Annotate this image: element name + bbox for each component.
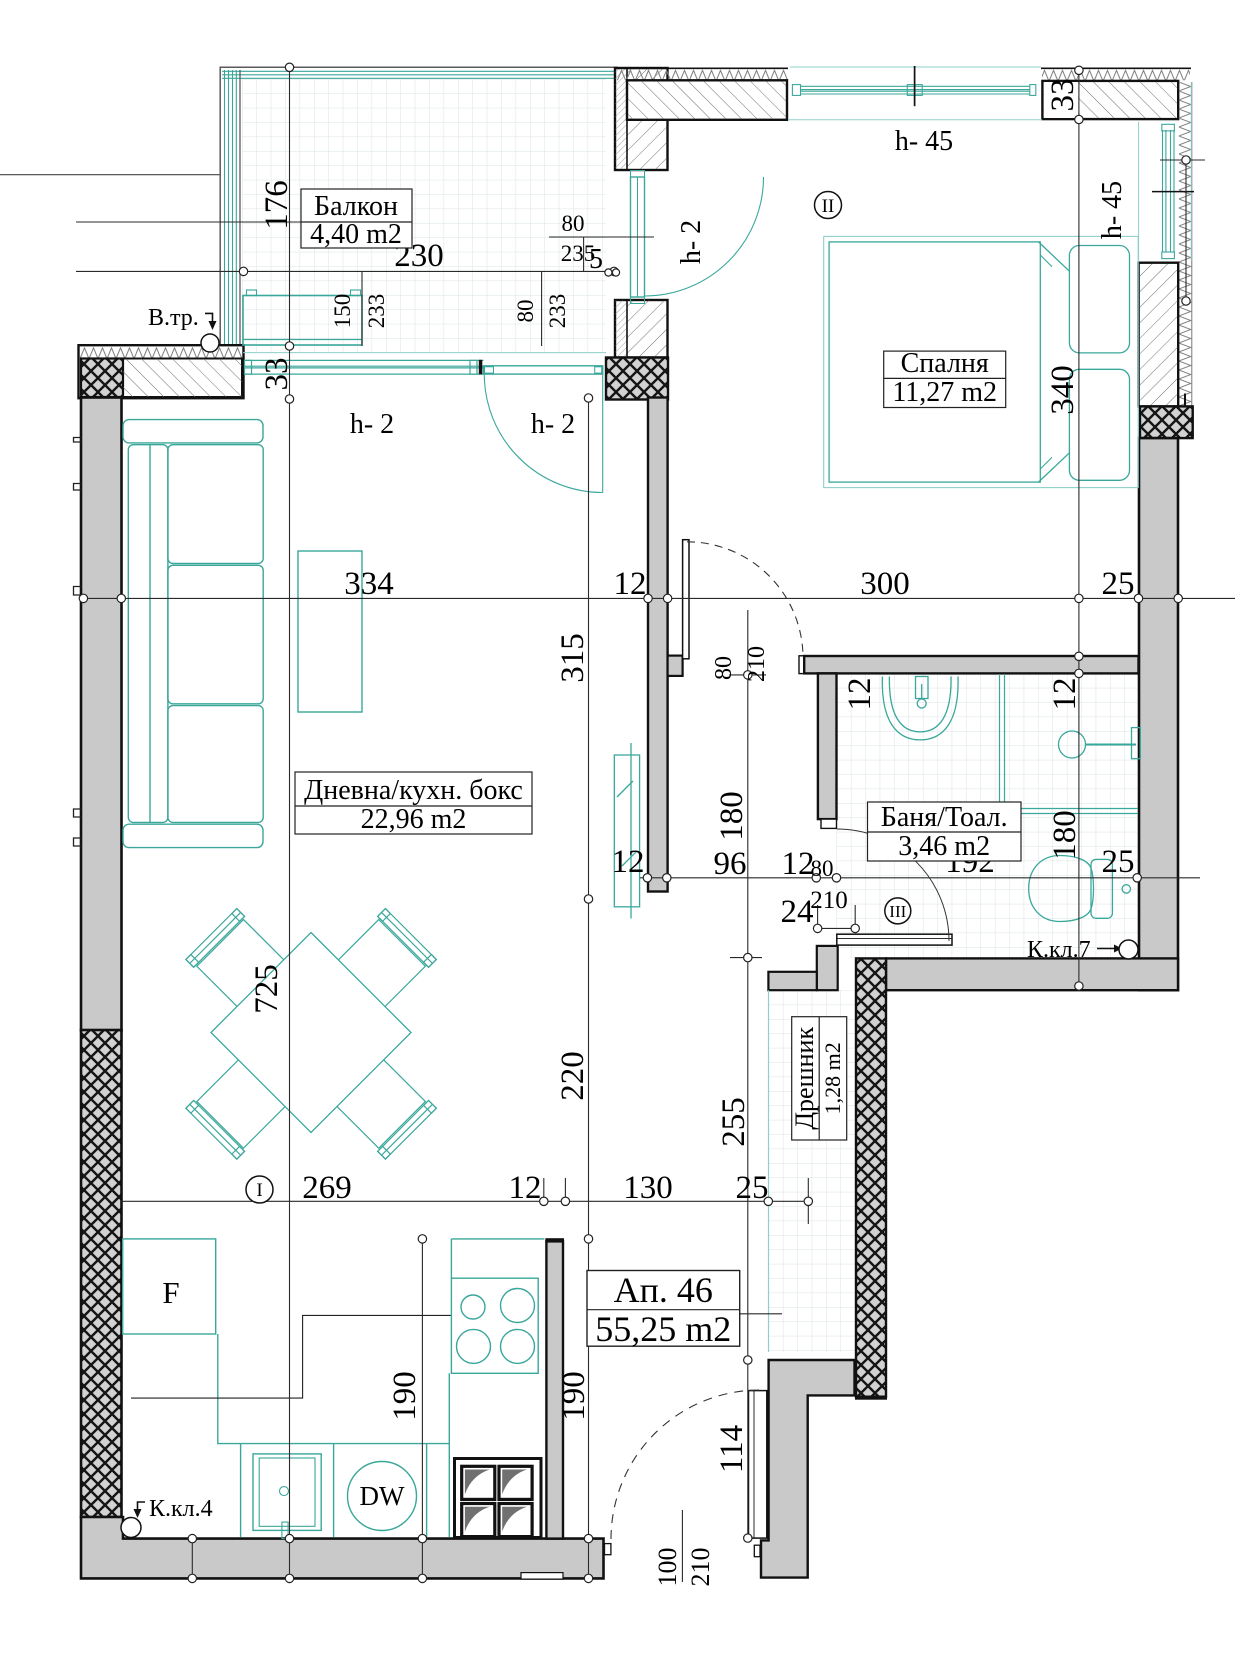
svg-text:33: 33	[259, 358, 295, 391]
svg-text:25: 25	[1102, 844, 1135, 880]
svg-text:22,96 m2: 22,96 m2	[361, 804, 467, 835]
svg-text:h- 45: h- 45	[895, 126, 953, 157]
svg-text:Спалня: Спалня	[901, 348, 989, 379]
svg-text:180: 180	[1047, 810, 1083, 860]
svg-text:II: II	[822, 196, 835, 217]
svg-text:h- 2: h- 2	[676, 220, 707, 264]
svg-text:725: 725	[249, 964, 285, 1014]
svg-text:Баня/Тоал.: Баня/Тоал.	[881, 802, 1008, 833]
svg-text:80: 80	[711, 656, 737, 680]
svg-text:DW: DW	[360, 1481, 405, 1511]
svg-text:Балкон: Балкон	[314, 191, 398, 222]
svg-text:80: 80	[513, 300, 538, 323]
svg-text:Ап. 46: Ап. 46	[614, 1270, 713, 1310]
svg-text:24: 24	[781, 894, 814, 930]
svg-text:25: 25	[1102, 566, 1135, 602]
svg-text:233: 233	[545, 294, 570, 329]
svg-text:К.кл.4: К.кл.4	[149, 1496, 213, 1522]
svg-text:210: 210	[744, 646, 770, 682]
svg-text:I: I	[256, 1180, 262, 1201]
svg-text:315: 315	[555, 633, 591, 683]
svg-text:12: 12	[612, 844, 645, 880]
svg-text:334: 334	[344, 566, 394, 602]
svg-text:176: 176	[259, 180, 295, 230]
svg-text:269: 269	[302, 1170, 352, 1206]
svg-text:190: 190	[556, 1371, 592, 1421]
svg-text:5: 5	[589, 244, 603, 275]
svg-text:233: 233	[364, 294, 389, 329]
svg-text:100: 100	[653, 1548, 682, 1587]
svg-text:25: 25	[736, 1170, 769, 1206]
svg-text:4,40 m2: 4,40 m2	[310, 219, 402, 250]
svg-text:В.тр.: В.тр.	[148, 305, 199, 331]
svg-text:210: 210	[686, 1548, 715, 1587]
svg-text:114: 114	[714, 1425, 750, 1473]
svg-text:255: 255	[716, 1097, 752, 1147]
svg-text:Дрешник: Дрешник	[790, 1027, 819, 1130]
svg-text:h- 2: h- 2	[531, 409, 575, 440]
svg-text:150: 150	[330, 294, 355, 329]
svg-text:h- 2: h- 2	[350, 409, 394, 440]
svg-text:130: 130	[623, 1170, 673, 1206]
svg-text:190: 190	[387, 1371, 423, 1421]
svg-text:III: III	[889, 902, 906, 921]
svg-text:Дневна/кухн. бокс: Дневна/кухн. бокс	[304, 775, 523, 806]
svg-text:33: 33	[1045, 79, 1081, 112]
svg-text:300: 300	[860, 566, 910, 602]
svg-text:96: 96	[714, 846, 747, 882]
svg-text:210: 210	[810, 887, 848, 914]
svg-text:12: 12	[614, 566, 647, 602]
svg-text:3,46 m2: 3,46 m2	[898, 831, 990, 862]
svg-text:220: 220	[555, 1051, 591, 1101]
svg-text:340: 340	[1045, 365, 1081, 415]
svg-text:80: 80	[811, 856, 834, 881]
svg-text:80: 80	[562, 211, 585, 236]
svg-text:12: 12	[842, 678, 878, 711]
svg-text:1,28 m2: 1,28 m2	[820, 1042, 845, 1114]
svg-text:180: 180	[714, 791, 750, 841]
svg-text:К.кл.7: К.кл.7	[1027, 937, 1091, 963]
svg-text:11,27 m2: 11,27 m2	[892, 377, 997, 408]
svg-text:F: F	[162, 1275, 179, 1310]
svg-text:12: 12	[509, 1170, 542, 1206]
svg-text:55,25 m2: 55,25 m2	[595, 1309, 731, 1349]
svg-text:h- 45: h- 45	[1097, 181, 1128, 239]
svg-text:12: 12	[1047, 678, 1083, 711]
